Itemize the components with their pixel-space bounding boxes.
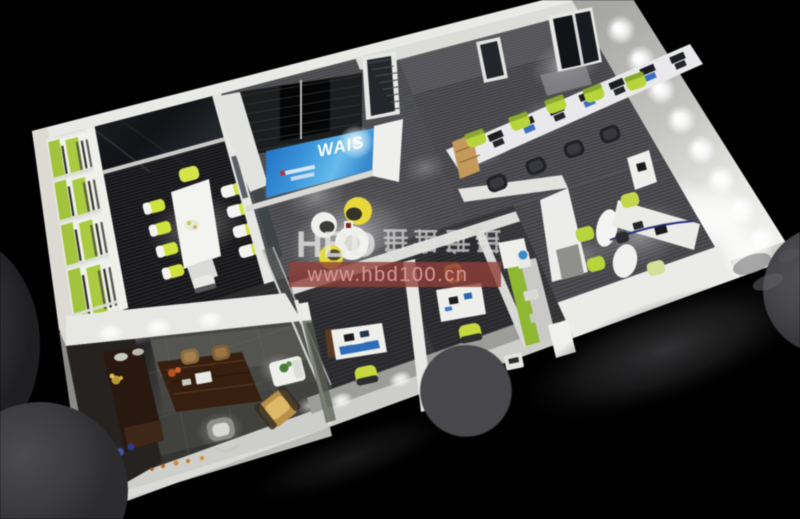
svg-text:www.hbd100.cn: www.hbd100.cn — [307, 264, 469, 286]
svg-text:HBD: HBD — [296, 224, 376, 265]
